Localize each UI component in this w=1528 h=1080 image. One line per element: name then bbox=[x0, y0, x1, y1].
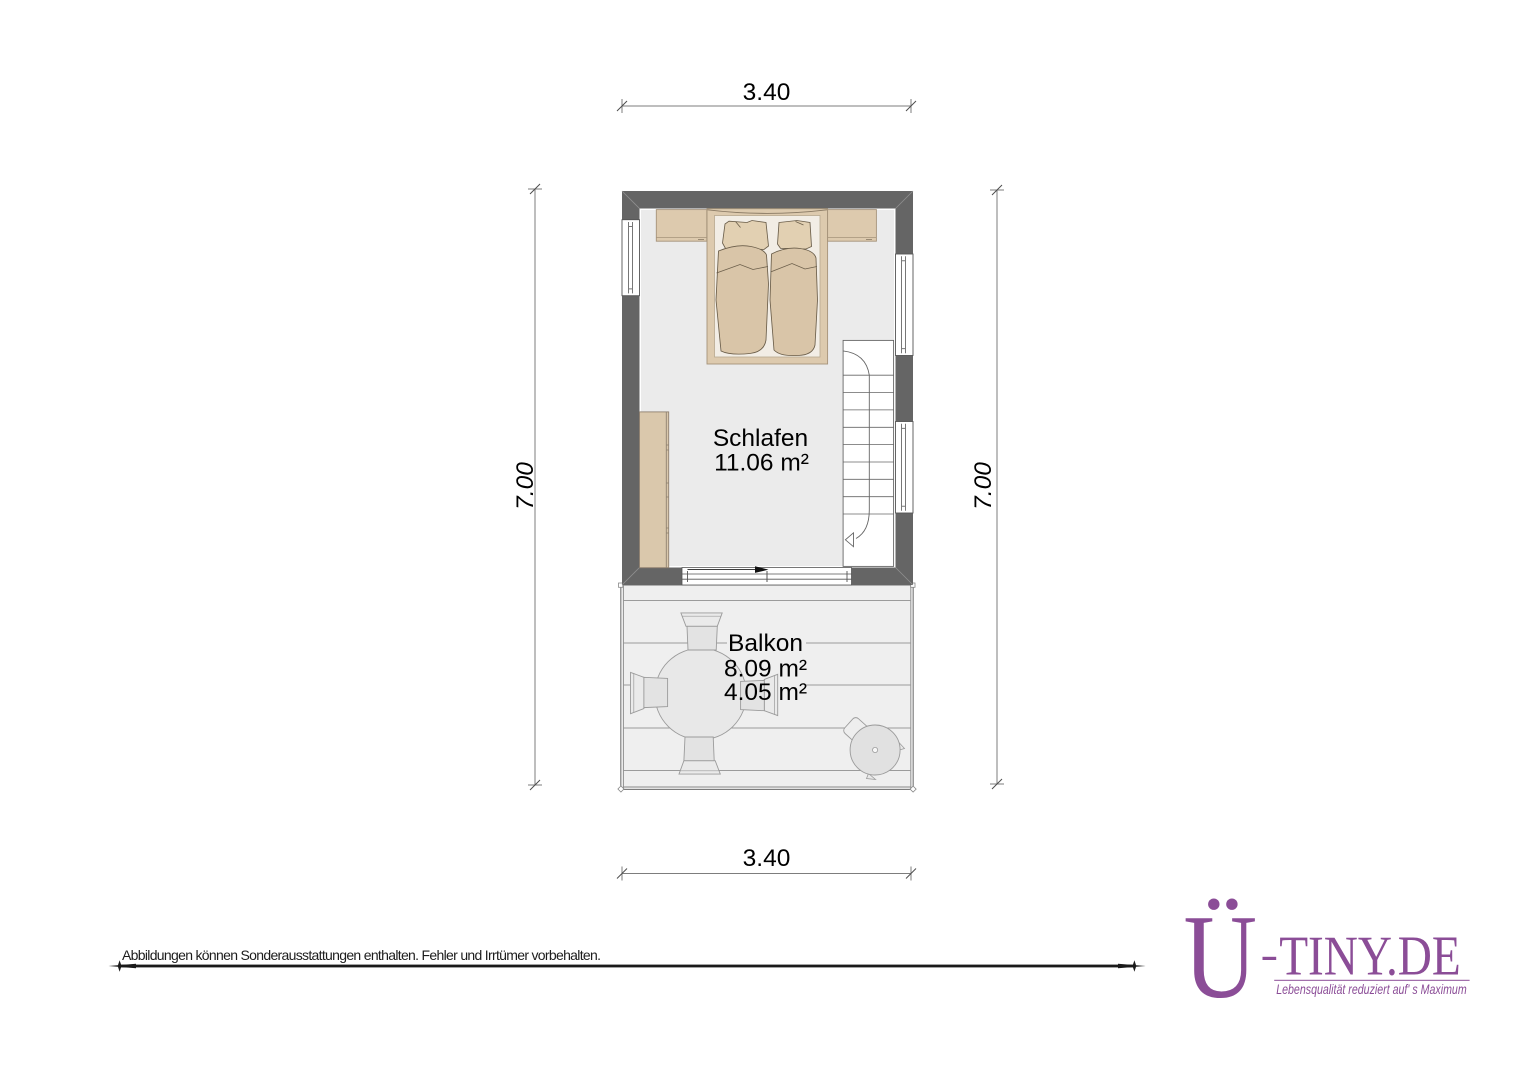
svg-text:7.00: 7.00 bbox=[970, 462, 997, 510]
svg-text:U: U bbox=[1184, 890, 1258, 1023]
svg-text:11.06 m²: 11.06 m² bbox=[714, 450, 809, 477]
svg-text:Abbildungen können Sonderausst: Abbildungen können Sonderausstattungen e… bbox=[122, 947, 601, 963]
svg-text:3.40: 3.40 bbox=[743, 79, 791, 106]
svg-text:Lebensqualität reduziert auf': Lebensqualität reduziert auf' s Maximum bbox=[1276, 981, 1467, 997]
svg-text:Balkon: Balkon bbox=[728, 630, 803, 657]
svg-text:Schlafen: Schlafen bbox=[713, 425, 808, 452]
svg-text:4.05 m²: 4.05 m² bbox=[724, 679, 807, 706]
svg-text:TINY.DE: TINY.DE bbox=[1279, 925, 1461, 987]
svg-text:3.40: 3.40 bbox=[743, 845, 791, 872]
svg-text:7.00: 7.00 bbox=[512, 462, 539, 510]
